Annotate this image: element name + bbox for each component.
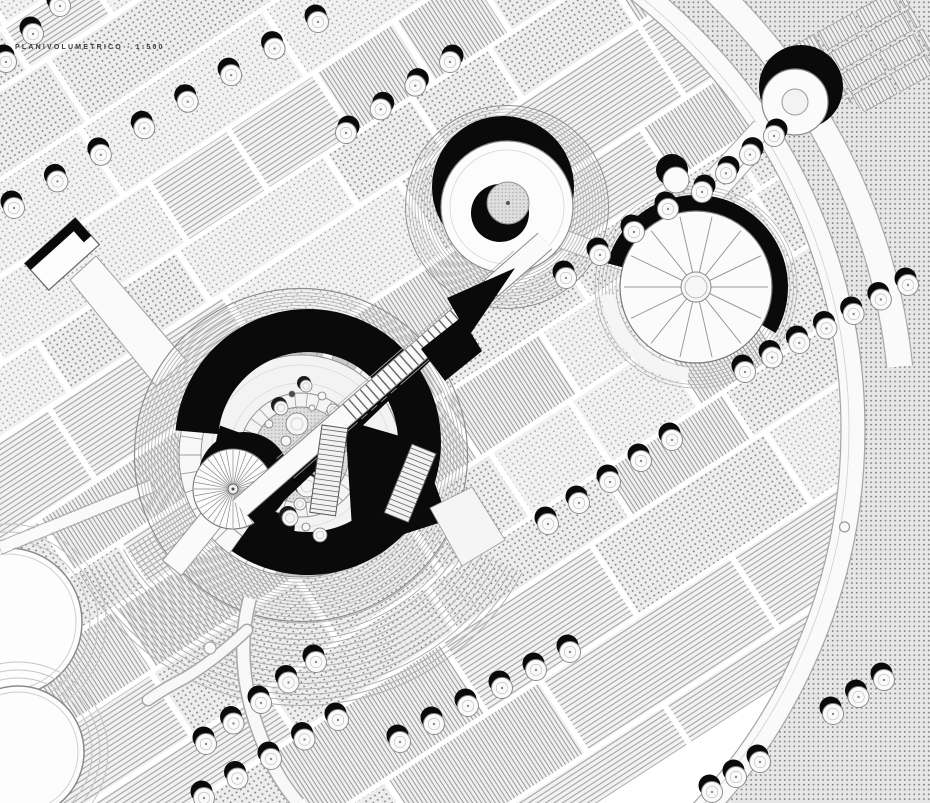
tree-trunk <box>640 460 642 462</box>
tree-trunk <box>825 327 827 329</box>
fan-center <box>232 488 235 491</box>
site-plan-drawing <box>0 0 930 803</box>
courtyard-tree <box>302 523 310 531</box>
oculus-center <box>506 201 510 205</box>
tree-trunk <box>501 687 503 689</box>
tree-trunk <box>857 696 859 698</box>
courtyard-tree <box>265 420 273 428</box>
road-node <box>840 522 850 532</box>
tree-trunk <box>230 74 232 76</box>
tree-trunk <box>735 776 737 778</box>
tree-trunk <box>667 208 669 210</box>
donut-hole <box>782 89 808 115</box>
tree-trunk <box>270 758 272 760</box>
roof-hub <box>681 272 711 302</box>
path-node <box>204 642 216 654</box>
tree-trunk <box>203 797 205 799</box>
tree-trunk <box>56 180 58 182</box>
tree-trunk <box>449 61 451 63</box>
tree-trunk <box>5 61 7 63</box>
courtyard-tree <box>294 498 306 510</box>
courtyard-tree <box>300 380 312 392</box>
tree-trunk <box>287 681 289 683</box>
tree-trunk <box>744 371 746 373</box>
tree-trunk <box>725 172 727 174</box>
tree-trunk <box>852 313 854 315</box>
tree-trunk <box>414 84 416 86</box>
tree-trunk <box>773 135 775 137</box>
tree-trunk <box>467 705 469 707</box>
tree-trunk <box>273 47 275 49</box>
tree-trunk <box>599 254 601 256</box>
tree-trunk <box>535 669 537 671</box>
courtyard-tree <box>274 401 288 415</box>
tree-trunk <box>609 481 611 483</box>
tree-trunk <box>565 277 567 279</box>
satellite-pavilion <box>663 167 689 193</box>
courtyard-tree <box>313 528 327 542</box>
tree-trunk <box>379 108 381 110</box>
tree-trunk <box>205 743 207 745</box>
tree-trunk <box>236 777 238 779</box>
tree <box>50 0 71 17</box>
tree-trunk <box>317 21 319 23</box>
courtyard-tree <box>282 510 298 526</box>
courtyard-tree <box>318 392 326 400</box>
tree-trunk <box>711 791 713 793</box>
tree-trunk <box>260 702 262 704</box>
tree-trunk <box>547 523 549 525</box>
tree <box>194 788 215 803</box>
tree-trunk <box>749 153 751 155</box>
tree-trunk <box>771 356 773 358</box>
tree-trunk <box>32 33 34 35</box>
tree-trunk <box>671 439 673 441</box>
tree-trunk <box>883 679 885 681</box>
tree-trunk <box>232 722 234 724</box>
tree-trunk <box>315 661 317 663</box>
tree-trunk <box>100 154 102 156</box>
courtyard-tree <box>309 405 315 411</box>
tree-trunk <box>907 284 909 286</box>
tree-trunk <box>798 342 800 344</box>
plan-title: PLANIVOLUMETRICO - 1:500 <box>15 44 165 51</box>
tree-trunk <box>187 101 189 103</box>
tree-trunk <box>701 191 703 193</box>
tree <box>0 52 17 73</box>
tree-trunk <box>569 651 571 653</box>
tree-trunk <box>59 5 61 7</box>
tree-trunk <box>399 741 401 743</box>
tree-trunk <box>578 502 580 504</box>
tree-trunk <box>13 207 15 209</box>
courtyard-tree <box>286 413 308 435</box>
tree-trunk <box>345 132 347 134</box>
tree-trunk <box>880 298 882 300</box>
tree-trunk <box>303 738 305 740</box>
tree-trunk <box>143 127 145 129</box>
tree-trunk <box>633 231 635 233</box>
tree-trunk <box>759 761 761 763</box>
courtyard-tree <box>289 391 295 397</box>
courtyard-tree <box>281 436 291 446</box>
tree-trunk <box>337 719 339 721</box>
tree-trunk <box>433 723 435 725</box>
tree-trunk <box>832 713 834 715</box>
site-plan: PLANIVOLUMETRICO - 1:500 <box>0 0 930 803</box>
